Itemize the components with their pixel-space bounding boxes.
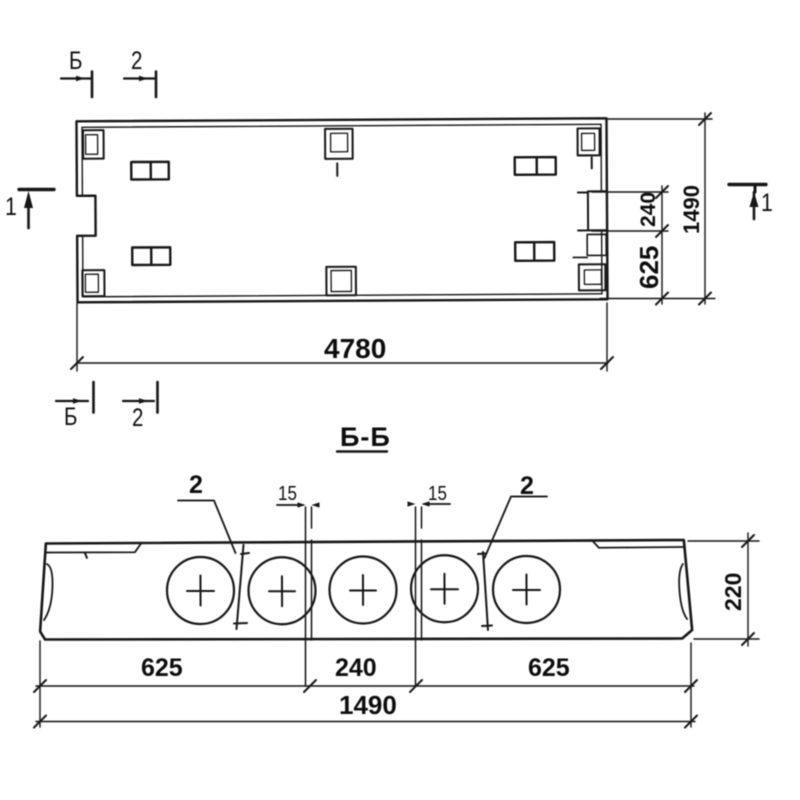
svg-text:1490: 1490 [339, 690, 397, 720]
svg-text:1490: 1490 [679, 185, 704, 234]
svg-text:625: 625 [528, 654, 570, 682]
svg-text:Б-Б: Б-Б [340, 422, 391, 452]
svg-text:Б: Б [69, 46, 82, 74]
svg-text:240: 240 [637, 192, 660, 227]
svg-text:4780: 4780 [324, 333, 386, 364]
svg-text:2: 2 [132, 403, 143, 431]
svg-text:1: 1 [761, 188, 773, 216]
svg-text:1: 1 [5, 192, 17, 220]
svg-text:Б: Б [64, 402, 77, 430]
svg-text:625: 625 [141, 654, 183, 682]
svg-text:2: 2 [131, 46, 142, 74]
svg-text:625: 625 [634, 246, 664, 289]
svg-text:15: 15 [428, 482, 447, 505]
svg-text:240: 240 [335, 654, 377, 682]
svg-text:15: 15 [278, 482, 297, 505]
svg-text:2: 2 [189, 471, 203, 499]
svg-text:220: 220 [720, 573, 746, 611]
